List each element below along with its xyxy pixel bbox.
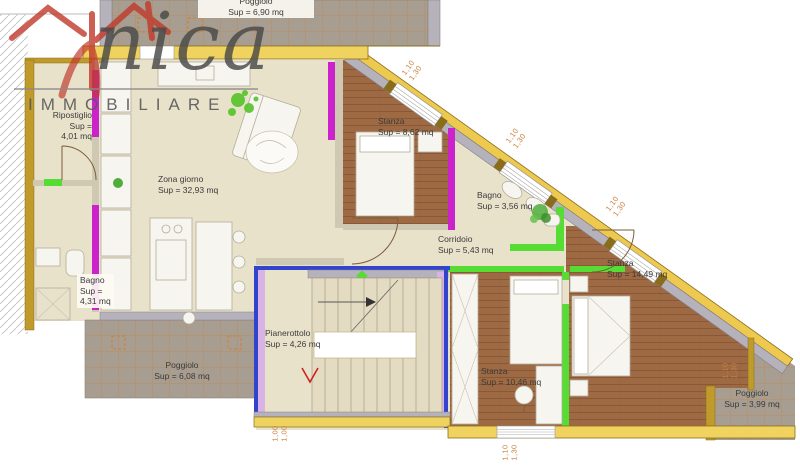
room-label-stanza-862: StanzaSup = 8,62 mq <box>378 116 434 137</box>
room-label-stanza-1046: StanzaSup = 10,46 mq <box>481 366 541 387</box>
nightstand <box>570 380 588 396</box>
room-label-bagno-356: BagnoSup = 3,56 mq <box>477 190 533 211</box>
wardrobe <box>452 274 478 424</box>
floorplan-canvas: nica IMMOBILIARE PoggioloSup = 6,90 mq R… <box>0 0 800 467</box>
room-label-pianerottolo: PianerottoloSup = 4,26 mq <box>265 328 321 349</box>
kitchen-cabinet <box>101 62 131 112</box>
room-label-poggiolo-top: PoggioloSup = 6,90 mq <box>198 0 314 18</box>
wall-magenta <box>328 62 335 140</box>
room-label-poggiolo-608: PoggioloSup = 6,08 mq <box>136 360 228 381</box>
room-label-corridoio: CorridoioSup = 5,43 mq <box>438 234 494 255</box>
wall-green <box>448 266 564 272</box>
wall-left-outer <box>25 60 34 330</box>
chair <box>233 256 245 268</box>
plant <box>113 178 123 188</box>
dim-stairs: 1,001,00 <box>272 425 289 441</box>
room-label-poggiolo-399: PoggioloSup = 3,99 mq <box>710 388 794 409</box>
chair <box>233 281 245 293</box>
wall-blue <box>254 266 450 270</box>
room-label-stanza-1449: StanzaSup = 14,49 mq <box>607 258 667 279</box>
wall-green <box>510 244 564 251</box>
window <box>497 426 555 438</box>
room-label-bagno-431: BagnoSup =4,31 mq <box>77 274 114 308</box>
wall-gray <box>100 312 256 320</box>
wall-green <box>44 179 62 186</box>
wall-green <box>556 207 564 251</box>
sink <box>36 248 60 266</box>
chair <box>515 386 533 404</box>
wall-lavender <box>258 270 265 417</box>
dim-poggiolo-door: 1,101,30 <box>722 362 739 378</box>
room-label-zona-giorno: Zona giornoSup = 32,93 mq <box>158 174 218 195</box>
wall-top <box>83 46 368 59</box>
nightstand <box>570 276 588 292</box>
wall-blue <box>254 266 258 420</box>
stairs <box>302 278 442 412</box>
wall-magenta <box>448 128 455 230</box>
dining-table <box>196 222 232 310</box>
dim-bottom-window: 1,101,30 <box>502 444 519 460</box>
room-label-ripostiglio: RipostiglioSup =4,01 mq <box>42 110 92 142</box>
chair <box>183 312 195 324</box>
toilet <box>66 250 84 276</box>
armchair <box>246 131 298 173</box>
chair <box>233 231 245 243</box>
wall-blue <box>444 266 448 428</box>
door-terrace <box>140 46 174 59</box>
kitchen-cabinet <box>101 114 131 154</box>
terrace-left <box>85 320 257 398</box>
kitchen-cabinet <box>101 210 131 256</box>
